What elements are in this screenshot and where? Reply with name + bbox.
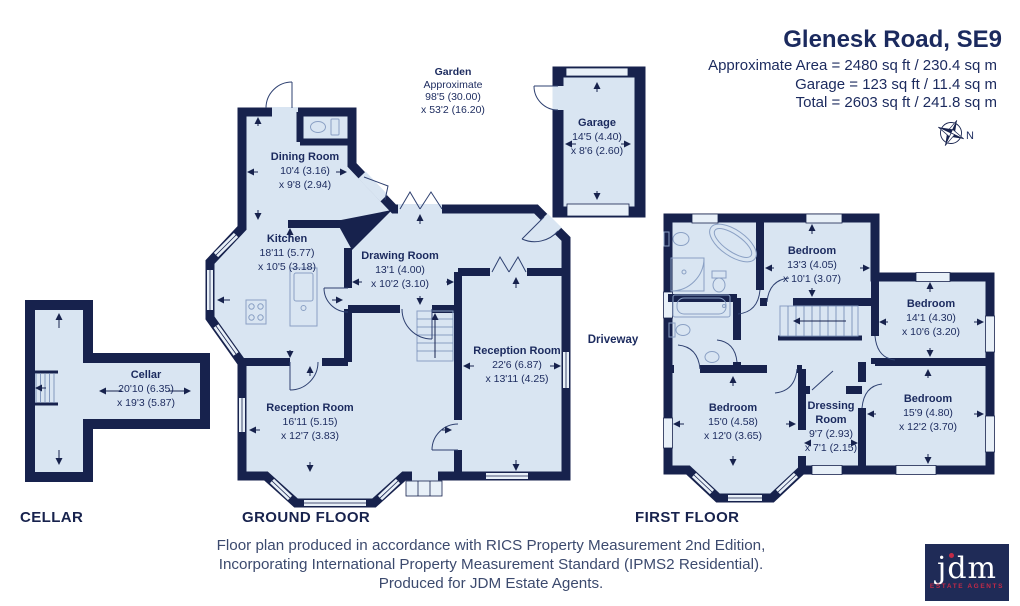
compass-north-label: N <box>966 130 974 142</box>
footer-line-1: Floor plan produced in accordance with R… <box>91 537 891 554</box>
area-line-2: Garage = 123 sq ft / 11.4 sq m <box>597 76 997 93</box>
page-title: Glenesk Road, SE9 <box>600 26 1002 54</box>
garden-note: Garden Approximate 98'5 (30.00) x 53'2 (… <box>393 66 513 116</box>
cellar-plan <box>30 305 205 477</box>
driveway-label: Driveway <box>563 334 663 346</box>
area-line-1: Approximate Area = 2480 sq ft / 230.4 sq… <box>597 57 997 74</box>
logo-j-dot <box>949 553 954 558</box>
first-floor-plan <box>664 214 995 498</box>
floor-title-cellar: CELLAR <box>20 509 83 526</box>
area-line-3: Total = 2603 sq ft / 241.8 sq m <box>597 94 997 111</box>
logo-text: jdm <box>937 555 997 582</box>
garden-line: Approximate <box>393 79 513 92</box>
compass-icon <box>932 114 969 151</box>
garden-title: Garden <box>393 66 513 79</box>
footer-line-2: Incorporating International Property Mea… <box>91 556 891 573</box>
front-steps <box>406 481 442 496</box>
floorplan-page: N Glenesk Road, SE9 Approximate Area = 2… <box>0 0 1020 606</box>
garden-dim-1: 98'5 (30.00) <box>393 91 513 104</box>
logo-tagline: ESTATE AGENTS <box>930 583 1004 590</box>
floor-title-ground: GROUND FLOOR <box>242 509 370 526</box>
floor-title-first: FIRST FLOOR <box>635 509 739 526</box>
jdm-logo: jdm ESTATE AGENTS <box>925 544 1009 601</box>
footer-line-3: Produced for JDM Estate Agents. <box>91 575 891 592</box>
garden-dim-2: x 53'2 (16.20) <box>393 104 513 117</box>
ground-floor-plan <box>210 82 566 503</box>
